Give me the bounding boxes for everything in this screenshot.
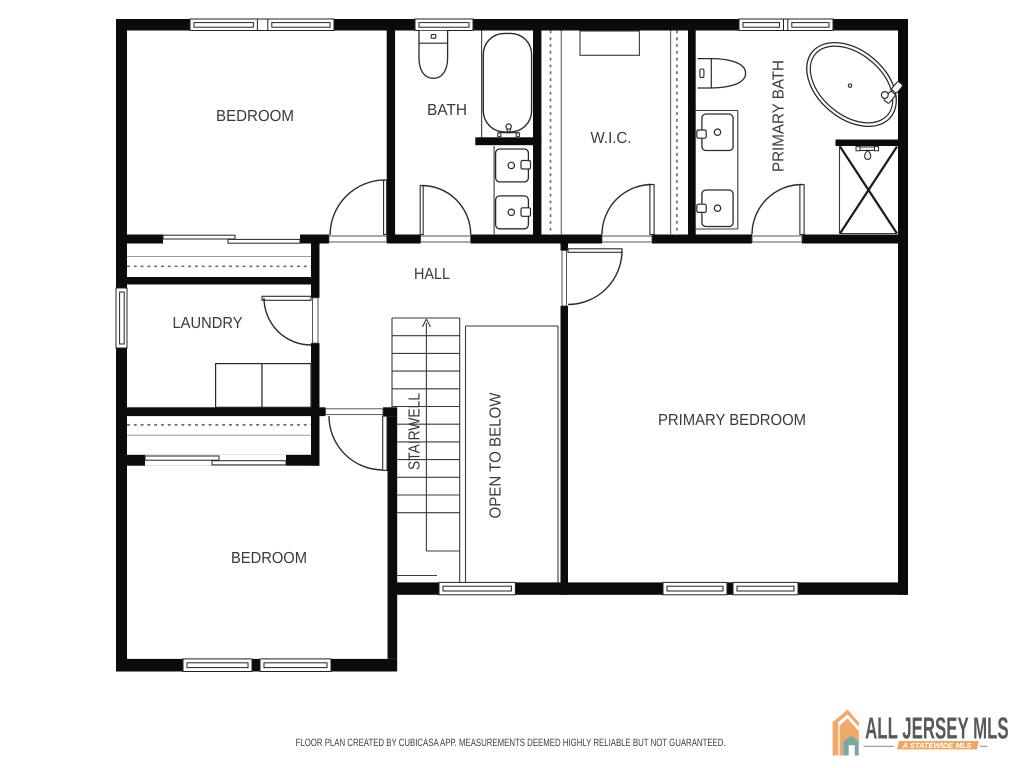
svg-text:BEDROOM: BEDROOM (231, 550, 307, 567)
svg-text:PRIMARY BATH: PRIMARY BATH (771, 60, 788, 172)
svg-text:FLOOR PLAN CREATED BY CUBICASA: FLOOR PLAN CREATED BY CUBICASA APP. MEAS… (296, 737, 726, 749)
svg-text:LAUNDRY: LAUNDRY (173, 315, 243, 332)
svg-text:BATH: BATH (427, 102, 467, 119)
svg-text:BEDROOM: BEDROOM (216, 108, 294, 125)
svg-text:A STATEWIDE MLS: A STATEWIDE MLS (902, 741, 972, 750)
svg-text:PRIMARY BEDROOM: PRIMARY BEDROOM (658, 412, 806, 429)
svg-text:OPEN TO BELOW: OPEN TO BELOW (487, 392, 504, 519)
svg-text:W.I.C.: W.I.C. (591, 130, 632, 147)
svg-text:STAIRWELL: STAIRWELL (407, 393, 424, 470)
svg-text:HALL: HALL (414, 266, 450, 283)
